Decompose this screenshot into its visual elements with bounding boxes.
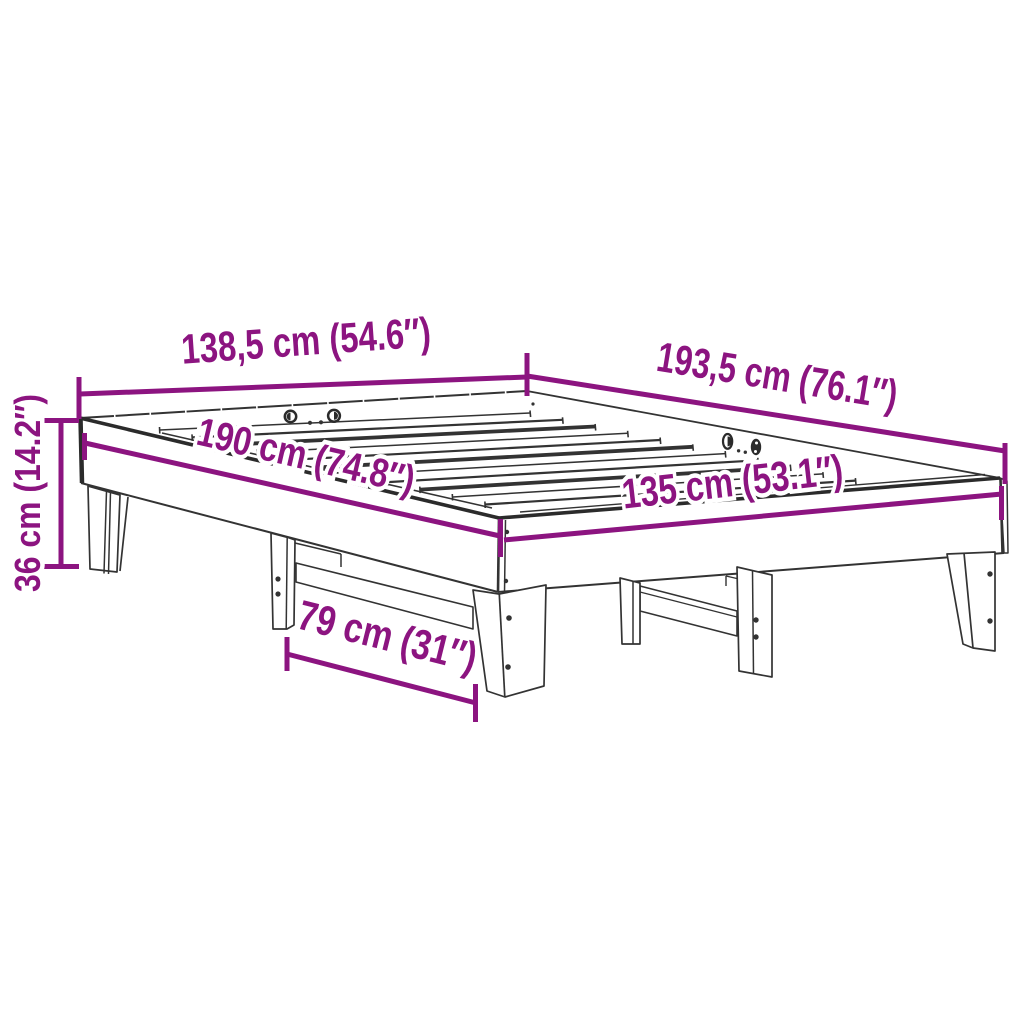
- svg-text:36 cm (14.2″): 36 cm (14.2″): [7, 394, 48, 592]
- svg-text:138,5 cm (54.6″): 138,5 cm (54.6″): [180, 308, 433, 372]
- svg-text:193,5 cm (76.1″): 193,5 cm (76.1″): [654, 333, 901, 419]
